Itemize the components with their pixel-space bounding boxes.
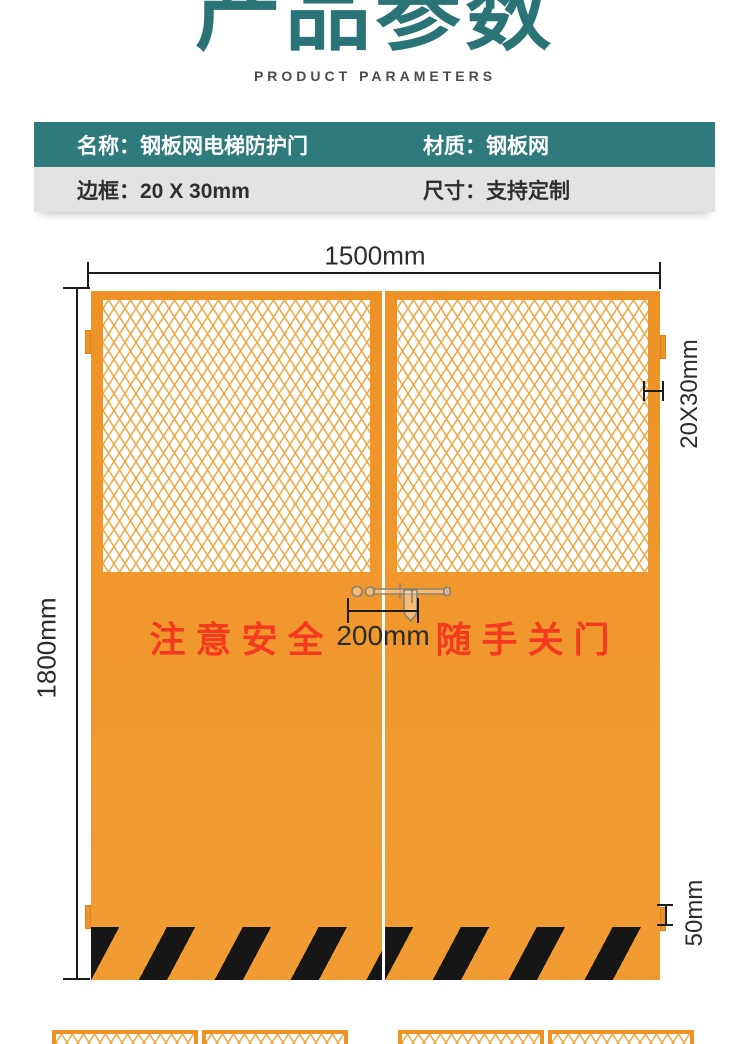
spec-label-size: 尺寸： — [423, 180, 486, 203]
hinge-left-top — [85, 330, 91, 354]
thumbnail-door-2 — [398, 1030, 694, 1044]
dimension-tick-bottomrail-bottom — [657, 924, 673, 926]
dimension-label-bottomrail: 50mm — [681, 880, 709, 947]
product-parameters-page: 产品参数 PRODUCT PARAMETERS 名称：钢板网电梯防护门 材质：钢… — [0, 0, 750, 1044]
thumbnail-mesh — [552, 1034, 690, 1044]
spec-row-name-material: 名称：钢板网电梯防护门 材质：钢板网 — [34, 122, 715, 167]
page-subtitle: PRODUCT PARAMETERS — [0, 68, 750, 84]
dimension-tick-left-bottom — [63, 978, 90, 980]
dimension-tick-top-right — [659, 262, 661, 289]
mesh-lattice — [397, 300, 648, 572]
spec-value-frame: 20 X 30mm — [140, 180, 250, 203]
spec-value-material: 钢板网 — [486, 135, 549, 158]
thumbnail-mesh — [402, 1034, 540, 1044]
thumbnail-panel — [202, 1030, 348, 1044]
dimension-line-bottomrail — [665, 906, 667, 926]
door-left-hazard-stripes — [91, 927, 382, 980]
page-title: 产品参数 — [0, 0, 750, 56]
dimension-line-frame — [644, 390, 664, 392]
spec-label-name: 名称： — [77, 135, 140, 158]
dimension-tick-bottomrail-top — [657, 904, 673, 906]
mesh-lattice — [103, 300, 370, 572]
thumbnail-door-1 — [52, 1030, 348, 1044]
spec-cell-size: 尺寸：支持定制 — [423, 175, 715, 205]
thumbnail-mesh — [56, 1034, 194, 1044]
spec-value-name: 钢板网电梯防护门 — [140, 135, 308, 158]
spec-label-frame: 边框： — [77, 180, 140, 203]
dimension-label-frame: 20X30mm — [676, 339, 704, 448]
hinge-left-bottom — [85, 905, 91, 929]
dimension-tick-frame-right — [662, 381, 664, 401]
spec-label-material: 材质： — [423, 135, 486, 158]
dimension-line-left — [76, 288, 78, 980]
thumbnail-mesh — [206, 1034, 344, 1044]
spec-table: 名称：钢板网电梯防护门 材质：钢板网 边框：20 X 30mm 尺寸：支持定制 — [34, 122, 715, 212]
door-right-hazard-stripes — [385, 927, 660, 980]
door-left-mesh — [103, 300, 370, 572]
spec-cell-frame: 边框：20 X 30mm — [77, 175, 423, 205]
thumbnail-panel — [52, 1030, 198, 1044]
spec-cell-material: 材质：钢板网 — [423, 130, 715, 160]
page-title-clip: 产品参数 — [0, 0, 750, 58]
hinge-right-top — [660, 335, 666, 359]
spec-cell-name: 名称：钢板网电梯防护门 — [77, 130, 423, 160]
thumbnail-panel — [548, 1030, 694, 1044]
thumbnail-panel — [398, 1030, 544, 1044]
spec-row-frame-size: 边框：20 X 30mm 尺寸：支持定制 — [34, 167, 715, 212]
dimension-label-gap: 200mm — [336, 620, 429, 652]
dimension-line-gap — [348, 610, 418, 612]
dimension-label-width: 1500mm — [324, 241, 425, 272]
dimension-tick-top-left — [87, 262, 89, 289]
dimension-label-height: 1800mm — [32, 597, 63, 698]
dimension-tick-frame-left — [643, 381, 645, 401]
door-right-mesh — [397, 300, 648, 572]
dimension-line-top — [88, 272, 660, 274]
dimension-tick-left-top — [63, 287, 90, 289]
spec-value-size: 支持定制 — [486, 180, 570, 203]
